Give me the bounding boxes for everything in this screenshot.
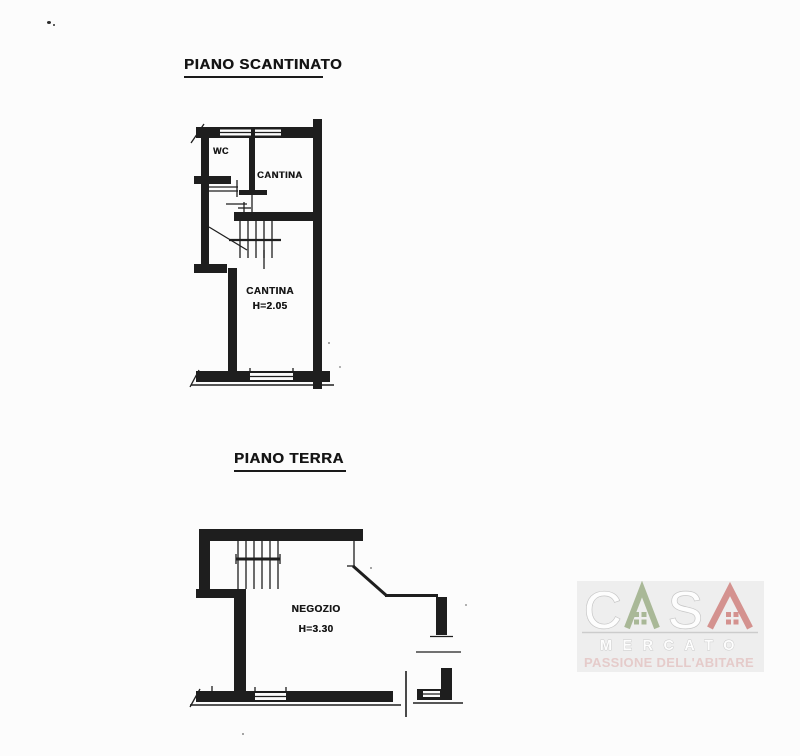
- ground-stairs: [236, 541, 280, 589]
- logo-tagline: PASSIONE DELL'ABITARE: [584, 656, 754, 670]
- ground-openings: [190, 652, 463, 717]
- basement-stairs: [209, 221, 281, 269]
- scan-speck: [242, 733, 244, 735]
- logo-letter-c: C: [584, 582, 622, 640]
- logo-letter-s: S: [668, 582, 703, 640]
- scan-speck: [53, 24, 55, 26]
- basement-door-details: [190, 124, 334, 387]
- room-label-negozio: NEGOZIO H=3.30: [286, 604, 346, 635]
- basement-title: PIANO SCANTINATO: [184, 56, 323, 78]
- ground-title: PIANO TERRA: [234, 450, 346, 472]
- logo-subword: MERCATO: [600, 637, 745, 654]
- room-label-wc: WC: [213, 146, 229, 156]
- scan-speck: [339, 366, 341, 368]
- scan-speck: [465, 604, 467, 606]
- scan-speck: [328, 342, 330, 344]
- basement-walls: [194, 119, 330, 389]
- room-label-cantina-lower: CANTINA H=2.05: [240, 286, 300, 312]
- room-height: H=3.30: [286, 624, 346, 635]
- room-name: CANTINA: [240, 286, 300, 297]
- scanned-floorplan-page: PIANO SCANTINATO WC CANTINA CANTINA H=2.…: [0, 0, 800, 756]
- room-height: H=2.05: [240, 301, 300, 312]
- scan-speck: [370, 567, 372, 569]
- casa-mercato-logo: C S MERCATO PASSIONE DELL'ABITARE: [576, 581, 766, 673]
- room-label-cantina-upper: CANTINA: [257, 170, 303, 181]
- room-name: NEGOZIO: [286, 604, 346, 615]
- basement-floor-plan: [190, 119, 334, 389]
- scan-speck: [47, 21, 51, 24]
